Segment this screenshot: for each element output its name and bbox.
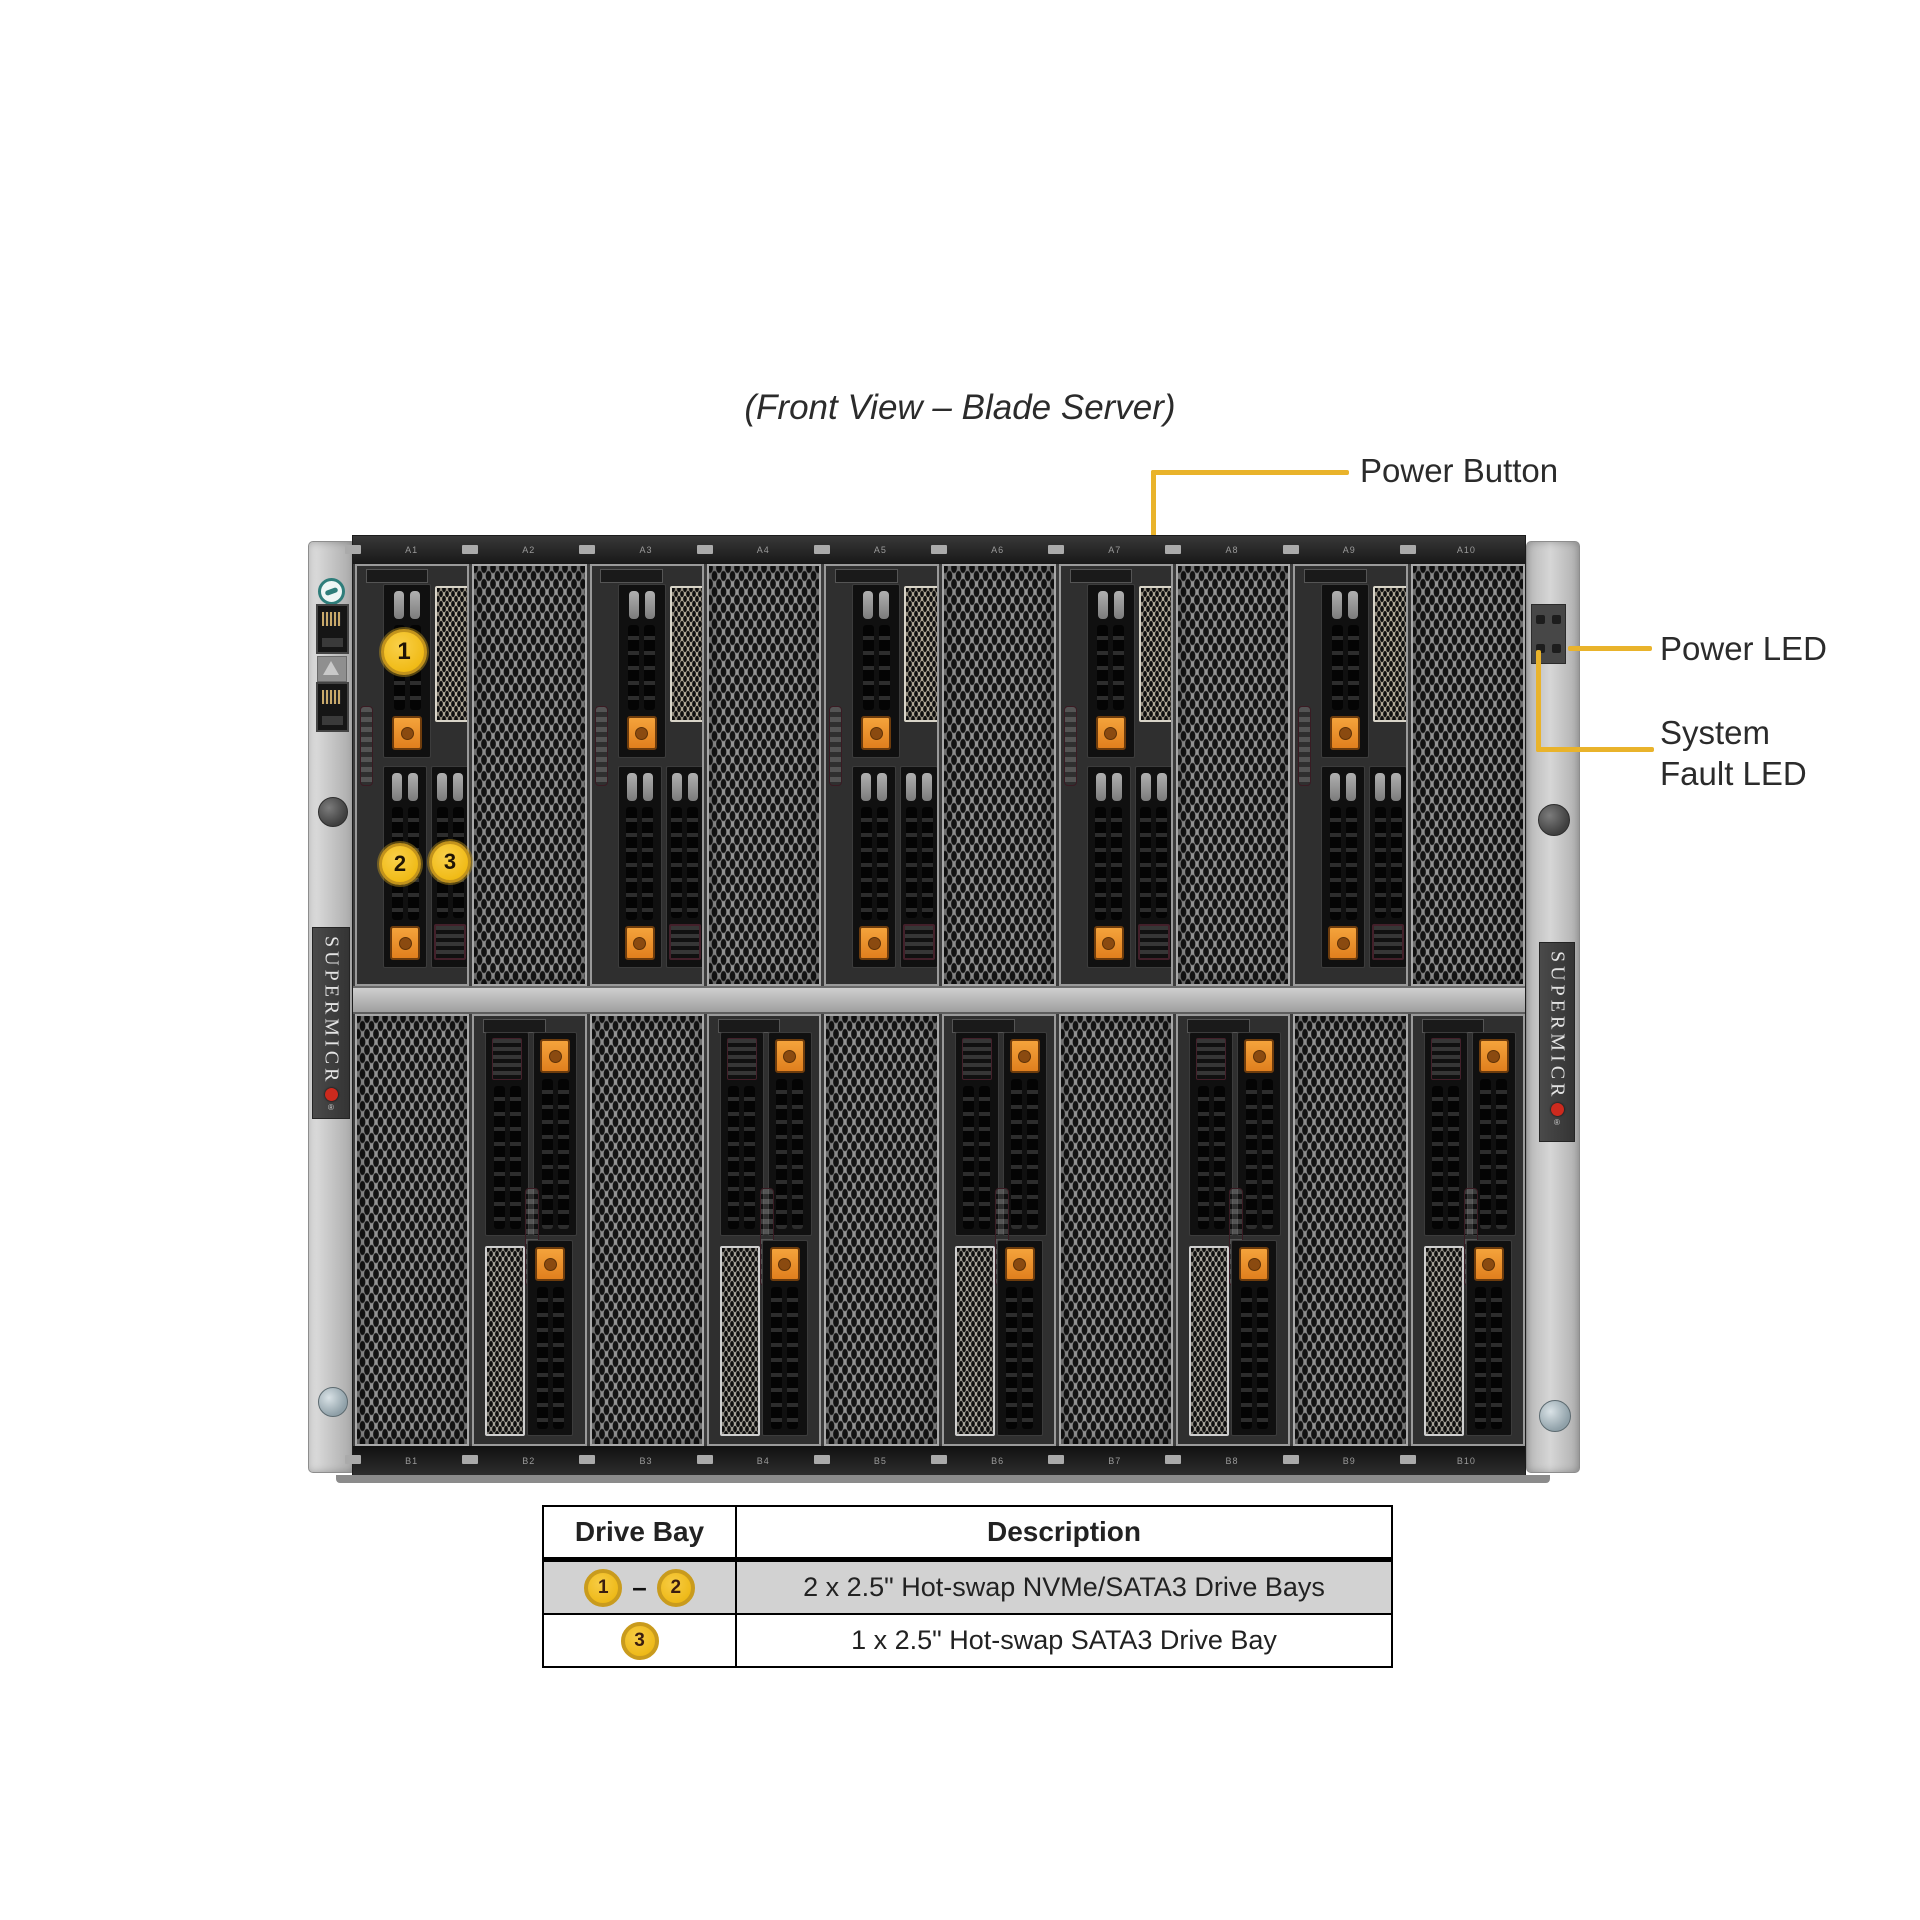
drive-carrier	[1231, 1240, 1277, 1436]
slot-id-label: B1	[405, 1456, 418, 1466]
slot-id-b7: B7	[1056, 1446, 1173, 1476]
slot-id-b10: B10	[1408, 1446, 1525, 1476]
slot-id-b8: B8	[1173, 1446, 1290, 1476]
drive-vent-slots	[486, 1086, 528, 1229]
slot-id-label: B8	[1225, 1456, 1238, 1466]
drive-grip-bars	[861, 773, 887, 801]
drive-carrier	[533, 1032, 577, 1236]
drive-carrier	[997, 1240, 1043, 1436]
blade-model-label	[1422, 1019, 1485, 1033]
blade-slot-a7	[1059, 564, 1173, 986]
slot-id-label: A8	[1225, 545, 1238, 555]
ethernet-port-icon	[316, 682, 349, 732]
drive-bay-1-carrier	[1321, 584, 1369, 758]
drive-vent-slots	[1232, 1287, 1276, 1429]
slot-id-label: B10	[1457, 1456, 1476, 1466]
blade-model-label	[1187, 1019, 1250, 1033]
slot-id-label: B7	[1108, 1456, 1121, 1466]
slot-id-b9: B9	[1291, 1446, 1408, 1476]
power-led-label: Power LED	[1660, 630, 1827, 668]
slot-id-label: B9	[1343, 1456, 1356, 1466]
drive-vent-slots	[1322, 807, 1364, 920]
brand-reg-mark: ®	[1554, 1118, 1560, 1127]
drive-bay-3-carrier	[1135, 766, 1173, 968]
drive-carrier	[762, 1240, 808, 1436]
drive-release-button-icon	[625, 926, 655, 960]
blade-slot-a5	[824, 564, 938, 986]
blade-slot-a1	[355, 564, 469, 986]
slot-id-label: B2	[522, 1456, 535, 1466]
drive-carrier	[1424, 1032, 1468, 1236]
range-dash: –	[632, 1572, 646, 1603]
drive-bay-3-carrier	[900, 766, 938, 968]
power-button-callout-line	[1151, 470, 1349, 475]
drive-vent-slots	[901, 807, 937, 918]
drive-release-button-icon	[627, 716, 657, 750]
blade-vent-grille	[435, 586, 469, 722]
drive-latch-block	[1138, 924, 1170, 960]
drive-release-button-icon	[1094, 926, 1124, 960]
drive-bay-3-carrier	[1369, 766, 1407, 968]
drive-release-button-icon	[861, 716, 891, 750]
blade-slot-b6	[942, 1014, 1056, 1446]
chassis-bottom-edge	[336, 1475, 1550, 1483]
drive-latch-block	[434, 924, 466, 960]
drive-bay-table: Drive Bay Description 1–22 x 2.5" Hot-sw…	[542, 1505, 1393, 1668]
drive-carrier	[1189, 1032, 1233, 1236]
brand-reg-mark: ®	[328, 1103, 334, 1112]
drive-grip-bars	[1375, 773, 1401, 801]
drive-grip-bars	[1330, 773, 1356, 801]
table-row: 1–22 x 2.5" Hot-swap NVMe/SATA3 Drive Ba…	[544, 1562, 1391, 1615]
slot-id-b1: B1	[353, 1446, 470, 1476]
blade-model-label	[366, 569, 429, 583]
drive-bay-marker-2: 2	[379, 843, 421, 885]
diagram-canvas: (Front View – Blade Server) Power Button…	[0, 0, 1920, 1920]
screw-icon	[1539, 1400, 1571, 1432]
slot-id-a2: A2	[470, 536, 587, 564]
slot-id-label: B5	[874, 1456, 887, 1466]
slot-id-b4: B4	[705, 1446, 822, 1476]
led-icon	[1536, 615, 1545, 624]
drive-bay-2-carrier	[852, 766, 896, 968]
drive-grip-bars	[1332, 591, 1358, 619]
chassis-main-body: A1A2A3A4A5A6A7A8A9A10	[352, 535, 1526, 1475]
mesh-filler-b9	[1293, 1014, 1407, 1446]
drive-bay-marker-1: 1	[381, 629, 427, 675]
drive-grip-bars	[863, 591, 889, 619]
table-cell-description: 1 x 2.5" Hot-swap SATA3 Drive Bay	[737, 1615, 1391, 1666]
brand-text: SUPERMICR	[320, 936, 343, 1085]
screw-icon	[318, 797, 348, 827]
drive-release-button-icon	[859, 926, 889, 960]
drive-vent-slots	[956, 1086, 998, 1229]
slot-id-label: B3	[639, 1456, 652, 1466]
drive-vent-slots	[721, 1086, 763, 1229]
drive-vent-slots	[763, 1287, 807, 1429]
drive-carrier	[1003, 1032, 1047, 1236]
drive-carrier	[955, 1032, 999, 1236]
chassis-right-ear: SUPERMICR ®	[1526, 541, 1580, 1473]
supermicro-logo-icon	[318, 578, 345, 605]
drive-release-button-icon	[1005, 1247, 1035, 1281]
screw-icon	[318, 1387, 348, 1417]
blade-model-label	[952, 1019, 1015, 1033]
drive-release-button-icon	[390, 926, 420, 960]
drive-bay-marker-3: 3	[429, 841, 471, 883]
drive-grip-bars	[394, 591, 420, 619]
blade-model-label	[1070, 569, 1133, 583]
drive-latch-block	[903, 924, 935, 960]
table-cell-drive-bay: 1–2	[544, 1562, 737, 1613]
drive-grip-bars	[627, 773, 653, 801]
drive-carrier	[1466, 1240, 1512, 1436]
slot-id-label: A5	[874, 545, 887, 555]
drive-bay-marker-3: 3	[621, 1622, 659, 1660]
blade-model-label	[483, 1019, 546, 1033]
slot-id-a10: A10	[1408, 536, 1525, 564]
drive-bay-1-carrier	[618, 584, 666, 758]
blade-vent-grille	[670, 586, 704, 722]
slot-id-a9: A9	[1291, 536, 1408, 564]
drive-vent-slots	[534, 1079, 576, 1229]
slot-id-label: A10	[1457, 545, 1476, 555]
blade-server-chassis: SUPERMICR ® A1A2A3A4A5A6A7A8A9A10	[308, 535, 1578, 1483]
system-fault-led-label-line1: System	[1660, 712, 1807, 753]
drive-vent-slots	[1190, 1086, 1232, 1229]
chassis-left-ear: SUPERMICR ®	[308, 541, 356, 1473]
drive-carrier	[1237, 1032, 1281, 1236]
drive-release-button-icon	[1328, 926, 1358, 960]
blade-vent-grille	[1189, 1246, 1229, 1436]
mesh-filler-b3	[590, 1014, 704, 1446]
drive-carrier	[527, 1240, 573, 1436]
blade-vent-grille	[720, 1246, 760, 1436]
slot-id-label: B4	[757, 1456, 770, 1466]
drive-latch-block	[1196, 1038, 1226, 1080]
drive-release-button-icon	[775, 1039, 805, 1073]
diagram-title: (Front View – Blade Server)	[460, 388, 1460, 428]
marker-number: 2	[394, 851, 406, 877]
slot-id-a7: A7	[1056, 536, 1173, 564]
drive-vent-slots	[619, 625, 665, 710]
drive-latch-block	[1431, 1038, 1461, 1080]
drive-grip-bars	[1098, 591, 1124, 619]
drive-release-button-icon	[1330, 716, 1360, 750]
drive-latch-block	[669, 924, 701, 960]
brand-text: SUPERMICR	[1546, 951, 1569, 1100]
drive-vent-slots	[998, 1287, 1042, 1429]
screw-icon	[1538, 804, 1570, 836]
drive-bay-marker-2: 2	[657, 1569, 695, 1607]
led-icon	[1552, 615, 1561, 624]
slot-id-a3: A3	[587, 536, 704, 564]
drive-grip-bars	[392, 773, 418, 801]
drive-bay-3-carrier	[666, 766, 704, 968]
slot-id-label: A9	[1343, 545, 1356, 555]
drive-vent-slots	[853, 807, 895, 920]
drive-vent-slots	[1322, 625, 1368, 710]
blade-eject-lever	[1064, 706, 1077, 786]
mesh-filler-b5	[824, 1014, 938, 1446]
ethernet-port-icon	[316, 604, 349, 654]
mesh-filler-a6	[942, 564, 1056, 986]
blade-model-label	[718, 1019, 781, 1033]
blade-slot-b10	[1411, 1014, 1525, 1446]
drive-bay-2-carrier	[618, 766, 662, 968]
drive-bay-1-carrier	[1087, 584, 1135, 758]
drive-vent-slots	[528, 1287, 572, 1429]
blade-slot-a3	[590, 564, 704, 986]
table-cell-drive-bay: 3	[544, 1615, 737, 1666]
blade-model-label	[600, 569, 663, 583]
drive-release-button-icon	[1239, 1247, 1269, 1281]
blade-vent-grille	[955, 1246, 995, 1436]
drive-vent-slots	[769, 1079, 811, 1229]
drive-grip-bars	[1096, 773, 1122, 801]
drive-vent-slots	[1088, 625, 1134, 710]
system-fault-led-icon	[1552, 644, 1561, 653]
slot-id-b5: B5	[822, 1446, 939, 1476]
slot-id-label: A6	[991, 545, 1004, 555]
brand-strip: SUPERMICR ®	[1539, 942, 1575, 1142]
blade-eject-lever	[829, 706, 842, 786]
drive-release-button-icon	[1244, 1039, 1274, 1073]
slot-id-label: A1	[405, 545, 418, 555]
row-divider-bar	[353, 986, 1525, 1014]
power-button-label: Power Button	[1360, 452, 1558, 490]
drive-bay-marker-1: 1	[584, 1569, 622, 1607]
drive-bay-2-carrier	[1087, 766, 1131, 968]
slot-id-label: A2	[522, 545, 535, 555]
blade-slot-b4	[707, 1014, 821, 1446]
blade-model-label	[1304, 569, 1367, 583]
blade-slot-b8	[1176, 1014, 1290, 1446]
drive-latch-block	[962, 1038, 992, 1080]
drive-grip-bars	[1141, 773, 1167, 801]
drive-grip-bars	[437, 773, 463, 801]
drive-vent-slots	[619, 807, 661, 920]
slot-id-label: B6	[991, 1456, 1004, 1466]
drive-release-button-icon	[1096, 716, 1126, 750]
blade-vent-grille	[904, 586, 938, 722]
drive-vent-slots	[1004, 1079, 1046, 1229]
blade-eject-lever	[595, 706, 608, 786]
drive-vent-slots	[1473, 1079, 1515, 1229]
drive-vent-slots	[1370, 807, 1406, 918]
blade-vent-grille	[1373, 586, 1407, 722]
mesh-filler-b7	[1059, 1014, 1173, 1446]
drive-carrier	[1472, 1032, 1516, 1236]
table-header-row: Drive Bay Description	[544, 1507, 1391, 1562]
blade-vent-grille	[1424, 1246, 1464, 1436]
drive-latch-block	[1372, 924, 1404, 960]
top-blade-row	[355, 564, 1525, 986]
blade-eject-lever	[1298, 706, 1311, 786]
system-fault-led-label-line2: Fault LED	[1660, 753, 1807, 794]
drive-vent-slots	[1136, 807, 1172, 918]
power-led-callout-line	[1568, 646, 1652, 651]
blade-eject-lever	[360, 706, 373, 786]
brand-red-dot-icon	[1551, 1103, 1564, 1116]
slot-id-label: A7	[1108, 545, 1121, 555]
drive-vent-slots	[1425, 1086, 1467, 1229]
system-fault-led-callout-line	[1536, 747, 1654, 752]
drive-grip-bars	[906, 773, 932, 801]
blade-vent-grille	[1139, 586, 1173, 722]
drive-release-button-icon	[1479, 1039, 1509, 1073]
top-slot-rail: A1A2A3A4A5A6A7A8A9A10	[353, 536, 1525, 564]
drive-bay-1-carrier	[852, 584, 900, 758]
warning-badge-icon	[317, 656, 347, 682]
drive-vent-slots	[1238, 1079, 1280, 1229]
slot-id-a1: A1	[353, 536, 470, 564]
system-fault-led-callout-line	[1536, 650, 1541, 752]
drive-release-button-icon	[1474, 1247, 1504, 1281]
slot-id-b2: B2	[470, 1446, 587, 1476]
blade-model-label	[835, 569, 898, 583]
drive-release-button-icon	[535, 1247, 565, 1281]
drive-release-button-icon	[1010, 1039, 1040, 1073]
mesh-filler-a10	[1411, 564, 1525, 986]
slot-id-label: A3	[639, 545, 652, 555]
drive-latch-block	[727, 1038, 757, 1080]
drive-carrier	[485, 1032, 529, 1236]
brand-red-dot-icon	[325, 1088, 338, 1101]
drive-carrier	[720, 1032, 764, 1236]
slot-id-a6: A6	[939, 536, 1056, 564]
table-header-drive-bay: Drive Bay	[544, 1507, 737, 1557]
mesh-filler-b1	[355, 1014, 469, 1446]
drive-carrier	[768, 1032, 812, 1236]
system-fault-led-label: System Fault LED	[1660, 712, 1807, 794]
blade-slot-b2	[472, 1014, 586, 1446]
bottom-slot-rail: B1B2B3B4B5B6B7B8B9B10	[353, 1446, 1525, 1476]
slot-id-b3: B3	[587, 1446, 704, 1476]
bottom-blade-row	[355, 1014, 1525, 1446]
drive-vent-slots	[1467, 1287, 1511, 1429]
drive-grip-bars	[672, 773, 698, 801]
blade-vent-grille	[485, 1246, 525, 1436]
slot-id-a4: A4	[705, 536, 822, 564]
drive-vent-slots	[853, 625, 899, 710]
table-header-description: Description	[737, 1507, 1391, 1557]
slot-id-a5: A5	[822, 536, 939, 564]
drive-release-button-icon	[540, 1039, 570, 1073]
brand-strip: SUPERMICR ®	[312, 927, 350, 1119]
slot-id-label: A4	[757, 545, 770, 555]
drive-vent-slots	[667, 807, 703, 918]
drive-vent-slots	[1088, 807, 1130, 920]
slot-id-a8: A8	[1173, 536, 1290, 564]
mesh-filler-a2	[472, 564, 586, 986]
drive-latch-block	[492, 1038, 522, 1080]
marker-number: 3	[444, 849, 456, 875]
drive-release-button-icon	[770, 1247, 800, 1281]
table-row: 31 x 2.5" Hot-swap SATA3 Drive Bay	[544, 1615, 1391, 1666]
drive-release-button-icon	[392, 716, 422, 750]
drive-bay-2-carrier	[1321, 766, 1365, 968]
mesh-filler-a4	[707, 564, 821, 986]
mesh-filler-a8	[1176, 564, 1290, 986]
marker-number: 1	[397, 638, 410, 666]
table-cell-description: 2 x 2.5" Hot-swap NVMe/SATA3 Drive Bays	[737, 1562, 1391, 1613]
slot-id-b6: B6	[939, 1446, 1056, 1476]
blade-slot-a9	[1293, 564, 1407, 986]
drive-grip-bars	[629, 591, 655, 619]
